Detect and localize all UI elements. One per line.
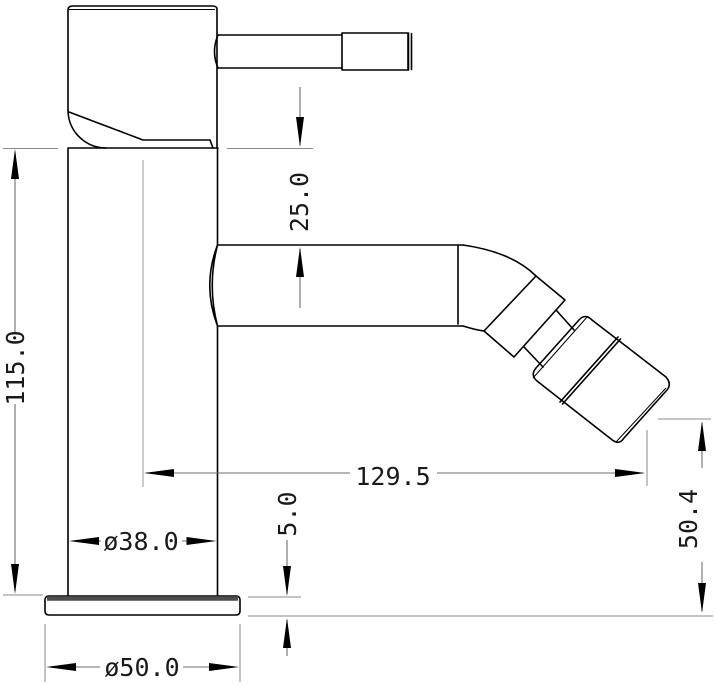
arrowhead-down: [283, 566, 291, 596]
control-lever: [218, 35, 342, 68]
dimension-spout-reach: 129.5: [144, 430, 647, 491]
arrowhead-up: [283, 618, 291, 648]
dimension-label: 129.5: [355, 462, 430, 491]
bidet-mixer-drawing: 115.0 25.0 129.5 ø38.0 ø50.0 5.0: [0, 0, 715, 685]
head-ring-joint: [560, 337, 621, 404]
dimension-label: 5.0: [273, 491, 302, 536]
dimension-label: ø38.0: [103, 527, 178, 556]
arrowhead-up: [698, 421, 706, 451]
dimension-label: 25.0: [285, 172, 314, 232]
arrowhead-right: [187, 537, 217, 545]
arrowhead-down: [11, 564, 19, 594]
dimension-label: 50.4: [674, 489, 703, 549]
aerator-head: [533, 317, 669, 443]
dimension-label: ø50.0: [104, 653, 179, 682]
arrowhead-right: [615, 469, 645, 477]
technical-drawing-canvas: 115.0 25.0 129.5 ø38.0 ø50.0 5.0: [0, 0, 715, 685]
handle-block-slant-edge: [69, 112, 213, 148]
dimension-base-diameter: ø50.0: [45, 624, 240, 682]
handle-block: [68, 6, 217, 147]
arrowhead-right: [209, 663, 239, 671]
spout-root-bulge: [210, 245, 218, 326]
faucet-outline: [45, 6, 669, 615]
spout-tube: [218, 245, 463, 326]
head-left-face-line: [533, 316, 588, 378]
dimension-body-diameter: ø38.0: [69, 527, 217, 556]
arrowhead-left: [144, 469, 174, 477]
dimension-base-thickness: 5.0: [248, 491, 302, 656]
knurled-grip: [342, 33, 408, 70]
dimension-overall-height: 115.0: [1, 149, 58, 596]
dimension-label: 115.0: [1, 330, 30, 405]
dimension-outlet-height: 50.4: [248, 419, 713, 616]
outlet-cap-line: [616, 388, 666, 442]
dimension-spout-offset: 25.0: [227, 87, 314, 308]
arrowhead-down: [698, 583, 706, 613]
arrowhead-down: [296, 117, 304, 147]
arrowhead-left: [46, 663, 76, 671]
cartridge-dome-arc: [68, 110, 106, 148]
extension-line: [248, 419, 713, 616]
elbow-joint-line: [484, 276, 536, 331]
arrowhead-left: [69, 537, 99, 545]
elbow-outer-arc: [463, 245, 536, 276]
elbow-inner-arc: [463, 326, 484, 331]
arrowhead-up: [11, 149, 19, 179]
lever-end-cap: [409, 33, 412, 70]
arrowhead-up: [296, 247, 304, 277]
